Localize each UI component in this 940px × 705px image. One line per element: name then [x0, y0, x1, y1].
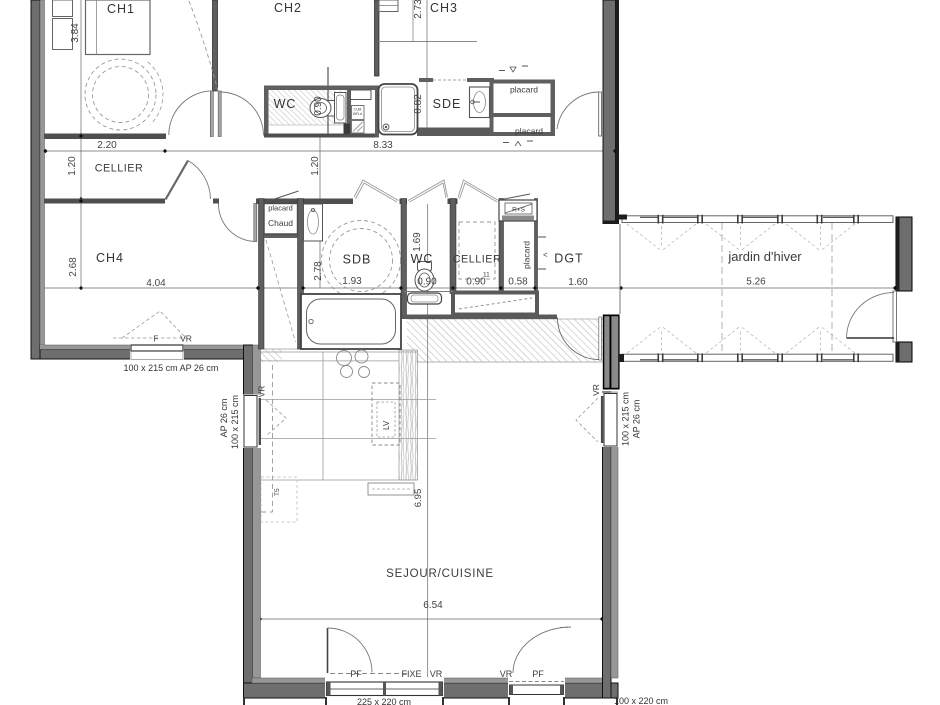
- svg-text:CH3: CH3: [430, 1, 458, 15]
- svg-text:1.20: 1.20: [67, 156, 78, 176]
- svg-text:CH2: CH2: [274, 1, 302, 15]
- svg-text:DGT: DGT: [554, 252, 583, 266]
- svg-text:0.90: 0.90: [417, 277, 437, 288]
- svg-text:SDB: SDB: [343, 253, 372, 267]
- svg-text:VR: VR: [180, 334, 192, 344]
- svg-text:placard: placard: [510, 85, 538, 95]
- svg-text:FIXE: FIXE: [401, 669, 421, 679]
- svg-text:CUM: CUM: [354, 108, 362, 112]
- svg-text:CH1: CH1: [107, 2, 135, 16]
- svg-text:100 x 215 cm: 100 x 215 cm: [230, 395, 240, 449]
- svg-text:0.58: 0.58: [508, 277, 528, 288]
- svg-text:0.90: 0.90: [313, 96, 324, 116]
- svg-text:4.04: 4.04: [146, 278, 166, 289]
- svg-text:6.95: 6.95: [413, 489, 424, 508]
- svg-text:CELLIER: CELLIER: [95, 163, 144, 175]
- svg-text:6.54: 6.54: [423, 600, 443, 611]
- svg-text:WFLA: WFLA: [353, 112, 363, 116]
- svg-text:100 x 215 cm AP 26 cm: 100 x 215 cm AP 26 cm: [124, 363, 219, 373]
- svg-text:AP 26 cm: AP 26 cm: [632, 400, 642, 439]
- svg-text:placard: placard: [522, 241, 532, 269]
- svg-text:WC: WC: [411, 252, 434, 266]
- svg-text:1.69: 1.69: [412, 232, 423, 252]
- svg-text:PF: PF: [350, 669, 362, 679]
- svg-text:2.68: 2.68: [68, 257, 79, 277]
- svg-text:SEJOUR/CUISINE: SEJOUR/CUISINE: [386, 568, 494, 580]
- svg-text:1.93: 1.93: [342, 276, 362, 287]
- svg-text:3.84: 3.84: [70, 23, 81, 43]
- svg-text:placard: placard: [268, 204, 293, 213]
- svg-text:PF: PF: [532, 669, 544, 679]
- svg-text:8.33: 8.33: [373, 140, 393, 151]
- svg-text:F: F: [154, 335, 159, 344]
- svg-text:<: <: [543, 251, 548, 260]
- svg-text:VR: VR: [591, 384, 601, 396]
- svg-text:WC: WC: [274, 97, 297, 111]
- svg-text:0.90: 0.90: [466, 277, 486, 288]
- svg-text:100 x 220 cm: 100 x 220 cm: [614, 696, 668, 705]
- svg-text:100 x 215 cm: 100 x 215 cm: [621, 392, 631, 446]
- svg-text:2.78: 2.78: [313, 261, 324, 281]
- svg-text:225 x 220 cm: 225 x 220 cm: [357, 697, 411, 705]
- svg-text:0.82: 0.82: [413, 94, 424, 114]
- svg-text:1.60: 1.60: [568, 277, 588, 288]
- svg-text:1.20: 1.20: [310, 156, 321, 176]
- svg-text:VR: VR: [430, 669, 443, 679]
- svg-text:AP 26 cm: AP 26 cm: [219, 399, 229, 438]
- svg-text:jardin d'hiver: jardin d'hiver: [727, 249, 802, 264]
- svg-text:VR: VR: [500, 669, 513, 679]
- svg-text:placard: placard: [515, 126, 543, 136]
- svg-text:2.73: 2.73: [413, 0, 424, 19]
- svg-text:T5: T5: [274, 488, 281, 496]
- svg-text:VR: VR: [257, 386, 267, 398]
- svg-text:5.26: 5.26: [746, 277, 766, 288]
- svg-text:Chaud: Chaud: [268, 218, 293, 228]
- svg-text:R+S: R+S: [512, 207, 525, 214]
- svg-text:LV: LV: [382, 420, 391, 430]
- svg-text:SDE: SDE: [433, 97, 462, 111]
- svg-text:CH4: CH4: [96, 251, 124, 265]
- svg-text:2.20: 2.20: [97, 140, 117, 151]
- svg-text:CELLIER: CELLIER: [453, 254, 502, 266]
